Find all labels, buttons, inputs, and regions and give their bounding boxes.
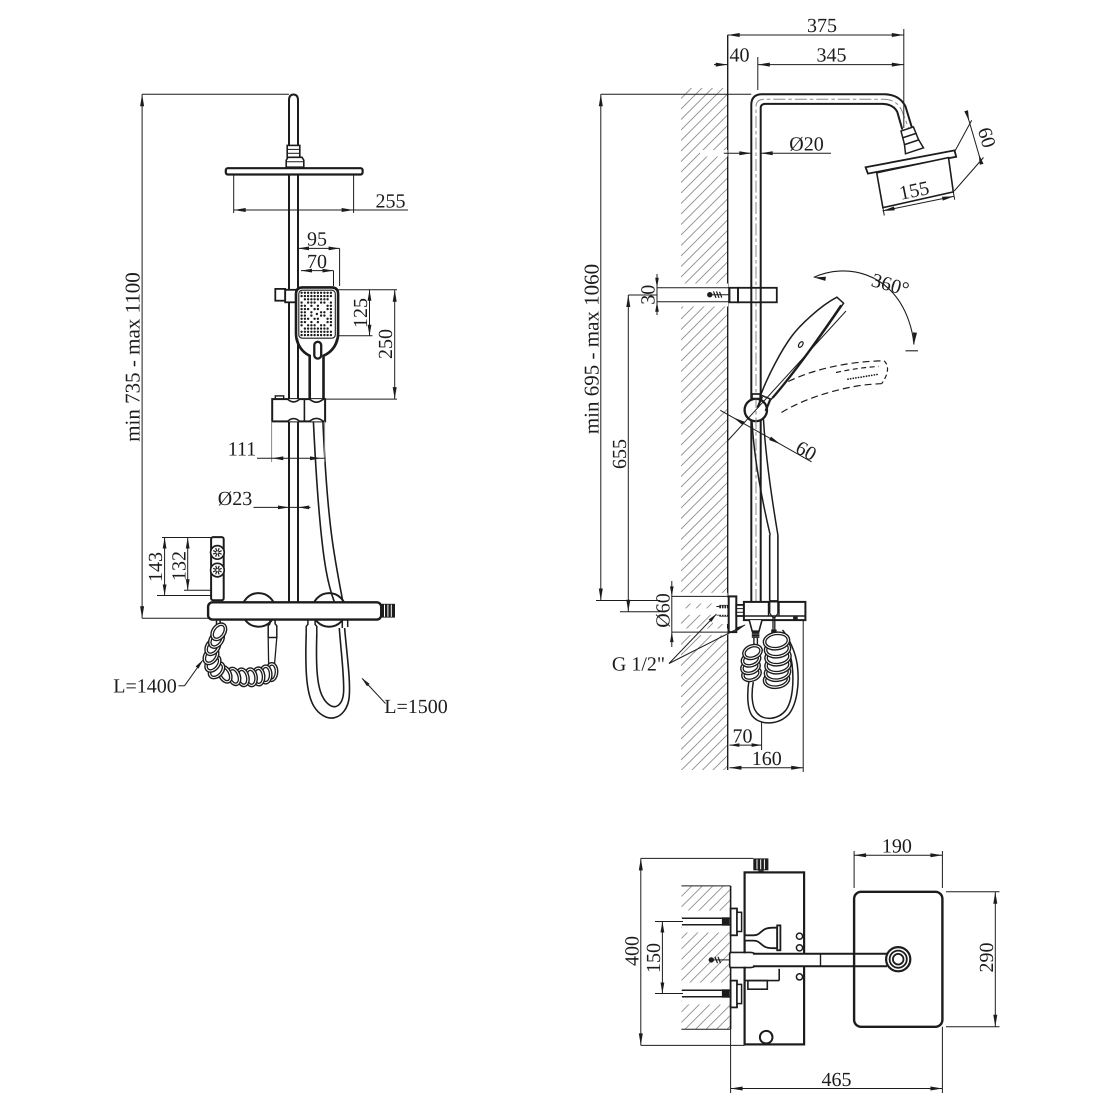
svg-text:L=1500: L=1500 (384, 696, 448, 718)
svg-text:70: 70 (307, 251, 327, 273)
svg-text:132: 132 (168, 551, 190, 581)
svg-text:255: 255 (376, 190, 406, 212)
svg-text:465: 465 (822, 1069, 852, 1091)
svg-text:40: 40 (730, 45, 750, 67)
svg-text:111: 111 (228, 439, 257, 461)
svg-text:95: 95 (307, 229, 327, 251)
svg-text:290: 290 (976, 943, 998, 973)
svg-text:Ø23: Ø23 (218, 488, 252, 510)
svg-text:345: 345 (817, 45, 847, 67)
svg-text:655: 655 (609, 439, 631, 469)
svg-text:400: 400 (621, 936, 643, 966)
svg-text:190: 190 (882, 836, 912, 858)
svg-text:min 695 - max 1060: min 695 - max 1060 (579, 264, 603, 434)
svg-text:150: 150 (643, 943, 665, 973)
svg-text:Ø60: Ø60 (652, 593, 674, 627)
svg-text:min 735 - max 1100: min 735 - max 1100 (121, 272, 145, 442)
svg-text:160: 160 (752, 748, 782, 770)
svg-text:250: 250 (375, 329, 397, 359)
svg-text:G 1/2": G 1/2" (612, 654, 665, 676)
svg-text:Ø20: Ø20 (789, 133, 823, 155)
svg-text:30: 30 (638, 285, 660, 305)
svg-text:375: 375 (807, 15, 837, 37)
svg-text:L=1400: L=1400 (113, 675, 177, 697)
svg-text:70: 70 (733, 726, 753, 748)
svg-text:125: 125 (350, 298, 372, 328)
svg-text:143: 143 (145, 552, 167, 582)
